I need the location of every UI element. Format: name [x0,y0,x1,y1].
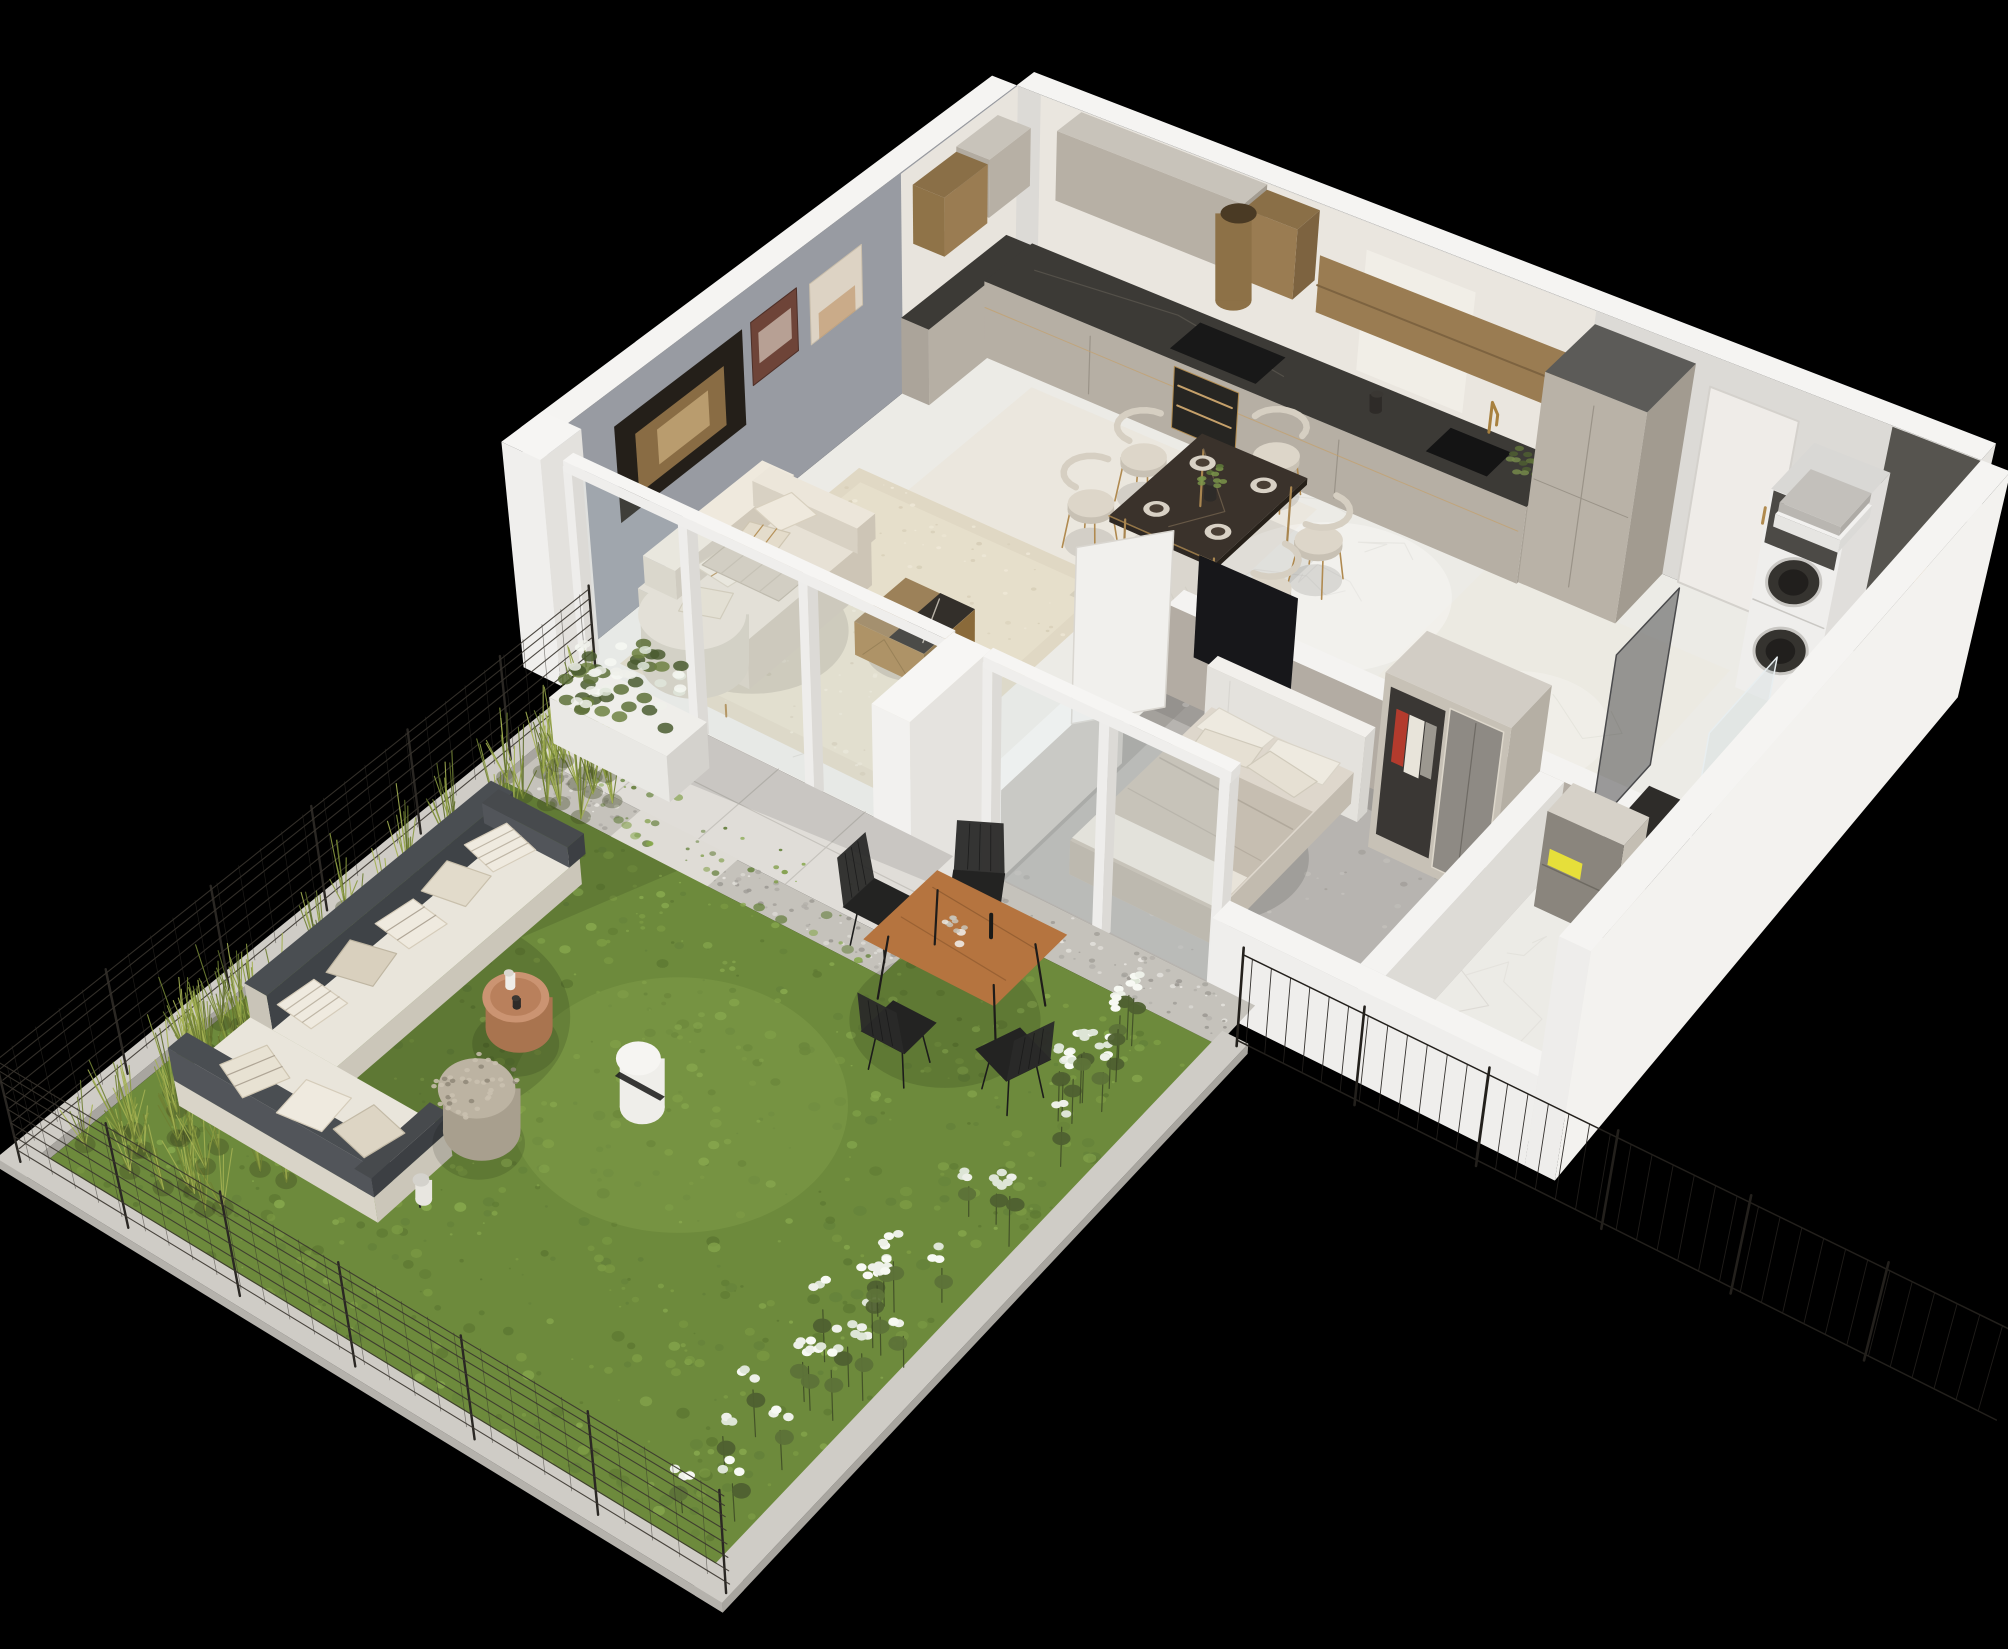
kitchen-upper-cab-bronze [1240,190,1320,300]
plate-1-center [1196,459,1210,467]
counter-jar [1370,391,1384,414]
table-candle-1 [504,969,516,990]
isometric-apartment-garden-scene [0,0,2008,1649]
range-hood [1215,203,1256,310]
plate-2-center [1257,481,1271,489]
washer-drum-inner [1766,639,1796,664]
white-lantern [616,1041,665,1124]
dryer-drum-inner [1778,569,1808,595]
table-candle-2 [512,995,521,1010]
plate-4-center [1211,527,1225,536]
floorplan-3d-render [0,0,2008,1649]
wine-glass-2 [955,940,965,947]
plate-3-center [1149,504,1163,512]
